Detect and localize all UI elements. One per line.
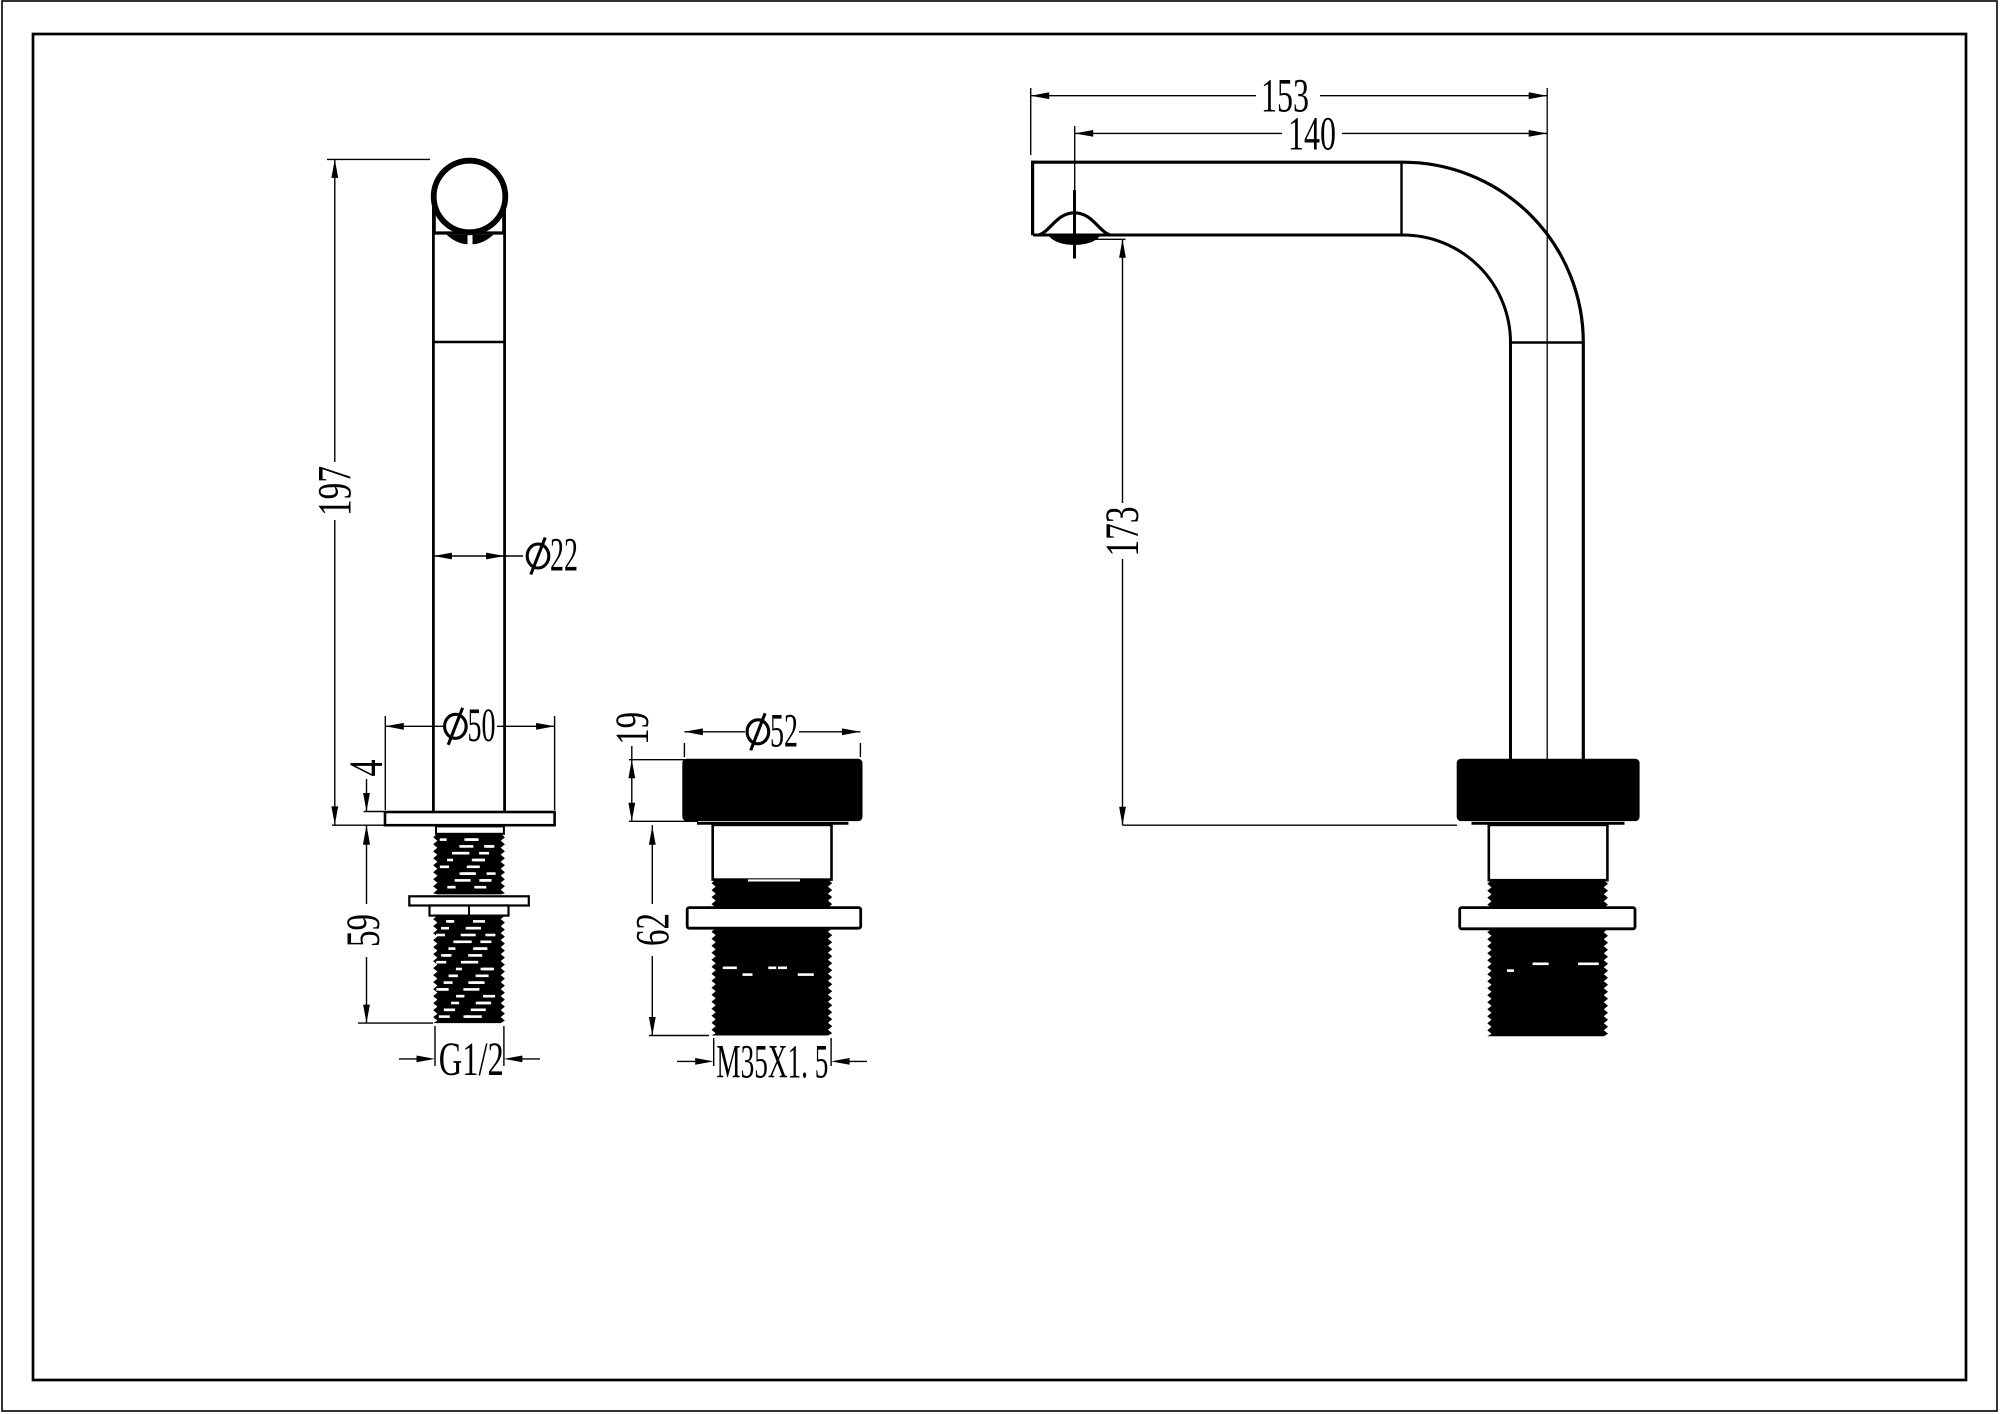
svg-text:62: 62 [626, 913, 679, 946]
svg-text:52: 52 [770, 704, 798, 757]
svg-text:59: 59 [337, 914, 390, 947]
svg-text:19: 19 [606, 712, 659, 745]
svg-text:140: 140 [1288, 107, 1336, 160]
svg-text:50: 50 [468, 699, 496, 752]
svg-text:197: 197 [308, 466, 361, 516]
svg-text:4: 4 [340, 760, 393, 777]
svg-text:173: 173 [1096, 507, 1149, 557]
svg-text:22: 22 [550, 529, 578, 582]
svg-text:G1/2: G1/2 [439, 1033, 504, 1086]
svg-text:M35X1. 5: M35X1. 5 [716, 1035, 828, 1088]
